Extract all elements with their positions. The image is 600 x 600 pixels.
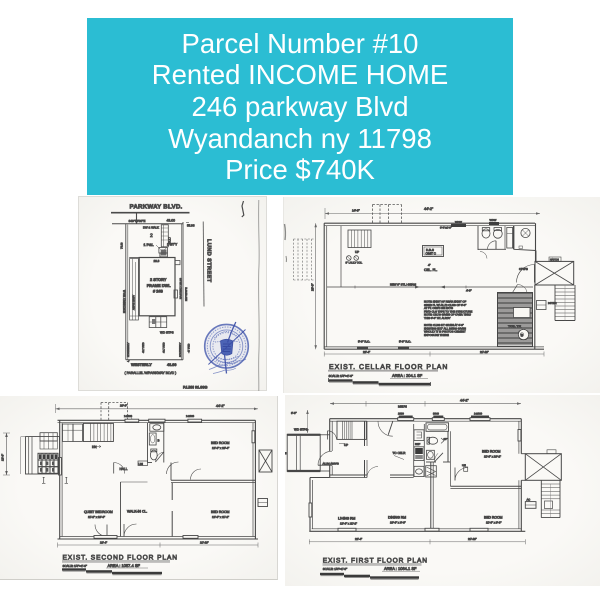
svg-text:6'-0": 6'-0": [291, 411, 297, 415]
svg-text:WD STPS: WD STPS: [160, 331, 174, 335]
svg-text:2-2030: 2-2030: [474, 413, 483, 416]
svg-text:DW & WALK: DW & WALK: [143, 226, 159, 230]
svg-text:22'-4": 22'-4": [355, 537, 362, 541]
svg-text:( PARALLEL W/PARKWAY BLVD ): ( PARALLEL W/PARKWAY BLVD ): [125, 371, 177, 375]
svg-text:SCALE: 1/4"=1'-0": SCALE: 1/4"=1'-0": [329, 374, 353, 378]
svg-text:HATCH: HATCH: [550, 259, 559, 262]
svg-text:EXIST. FIRST FLOOR PLAN: EXIST. FIRST FLOOR PLAN: [323, 558, 428, 565]
svg-text:3'-0"x1'-6": 3'-0"x1'-6": [440, 227, 452, 230]
svg-text:75.36: 75.36: [121, 242, 124, 249]
svg-text:EXPOSURE THERE: EXPOSURE THERE: [424, 334, 449, 337]
svg-text:43.00: 43.00: [167, 363, 177, 367]
svg-text:AREA : 1057.4 SF: AREA : 1057.4 SF: [108, 563, 141, 568]
svg-text:SOUTHERLY: SOUTHERLY: [179, 342, 182, 357]
svg-text:S43°58'00"E: S43°58'00"E: [129, 219, 146, 223]
svg-text:43.7 FE'D: 43.7 FE'D: [163, 342, 166, 353]
svg-text:WDW: WDW: [490, 219, 497, 222]
svg-text:REF: REF: [415, 443, 421, 446]
svg-text:TOIL TR: TOIL TR: [508, 325, 522, 329]
svg-text:LUND STREET: LUND STREET: [206, 239, 212, 283]
svg-text:5'-8" R.O.: 5'-8" R.O.: [399, 340, 411, 344]
svg-text:AC: AC: [527, 499, 531, 502]
svg-text:3" LALLY COL: 3" LALLY COL: [346, 262, 363, 265]
svg-text:21'-10": 21'-10": [468, 537, 477, 541]
svg-text:2-2030: 2-2030: [186, 415, 195, 418]
svg-text:EASTERLY 118.88: EASTERLY 118.88: [179, 277, 182, 299]
svg-text:26.3: 26.3: [154, 259, 160, 263]
svg-text:HALL: HALL: [120, 467, 128, 471]
svg-text:THIS 6'-8" HT. ALRDY: THIS 6'-8" HT. ALRDY: [424, 317, 451, 320]
svg-text:20'-8": 20'-8": [120, 404, 127, 408]
svg-text:44'-2": 44'-2": [424, 207, 434, 211]
svg-text:4'-0": 4'-0": [466, 289, 472, 293]
svg-text:22'-4": 22'-4": [100, 541, 107, 545]
svg-text:14'-6": 14'-6": [352, 209, 360, 213]
svg-text:B: B: [158, 439, 160, 443]
svg-text:QUIET BEDROOM: QUIET BEDROOM: [84, 510, 113, 514]
svg-text:1 ST'Y: 1 ST'Y: [167, 243, 178, 247]
svg-text:OPN'G: OPN'G: [519, 267, 528, 271]
svg-text:12'-0" x 10'-4": 12'-0" x 10'-4": [212, 446, 229, 450]
svg-text:OMIT C: OMIT C: [426, 252, 437, 256]
svg-text:LIVING RM: LIVING RM: [338, 517, 356, 521]
svg-text:EXIST. CELLAR FLOOR PLAN: EXIST. CELLAR FLOOR PLAN: [329, 364, 448, 371]
svg-text:3040: 3040: [433, 413, 439, 416]
svg-text:WESTERLY: WESTERLY: [131, 363, 152, 367]
svg-text:12'-6" x 11'-2": 12'-6" x 11'-2": [340, 522, 357, 526]
svg-text:SCALE: 1/4"=1'-0": SCALE: 1/4"=1'-0": [63, 564, 87, 568]
svg-text:2: 2: [150, 233, 153, 239]
svg-text:WDW: WDW: [455, 221, 462, 224]
svg-text:WALK-IN CL.: WALK-IN CL.: [127, 510, 147, 514]
svg-text:2-2030: 2-2030: [124, 415, 133, 418]
svg-text:5'-8" R.O.: 5'-8" R.O.: [358, 340, 370, 344]
svg-text:44'-2": 44'-2": [216, 404, 225, 408]
svg-text:ALUM AWN'G: ALUM AWN'G: [323, 462, 339, 465]
svg-text:2030: 2030: [398, 413, 404, 416]
svg-text:55.96: 55.96: [187, 224, 195, 228]
svg-text:P.LBN 91.08G: P.LBN 91.08G: [183, 386, 207, 390]
svg-text:AREA : 204.1 SF: AREA : 204.1 SF: [392, 373, 423, 378]
svg-text:NORTHERLY: NORTHERLY: [127, 342, 130, 357]
svg-text:11'-2" x 10'-6": 11'-2" x 10'-6": [88, 515, 105, 519]
svg-text:21'-10": 21'-10": [200, 541, 209, 545]
svg-text:11'-6" x 10'-2": 11'-6" x 10'-2": [484, 455, 501, 459]
svg-text:28'-0": 28'-0": [311, 283, 315, 291]
svg-text:11'-6" x 9'-8": 11'-6" x 9'-8": [486, 521, 501, 525]
svg-text:MED'N: MED'N: [398, 405, 407, 409]
svg-text:NORTHERLY 118.11: NORTHERLY 118.11: [123, 289, 126, 313]
svg-text:CEL. FL.: CEL. FL.: [424, 268, 437, 272]
svg-text:N46°02'00"E: N46°02'00"E: [185, 287, 188, 301]
svg-text:43.00: 43.00: [167, 219, 176, 223]
svg-text:SCALE: 1/4"=1'-0": SCALE: 1/4"=1'-0": [323, 567, 347, 571]
svg-text:WD STPS: WD STPS: [294, 428, 308, 432]
svg-text:30": 30": [444, 438, 448, 441]
svg-text:22'-4": 22'-4": [363, 350, 370, 354]
svg-text:BED ROOM: BED ROOM: [482, 450, 501, 454]
svg-text:PARKWAY BLVD.: PARKWAY BLVD.: [130, 204, 183, 211]
svg-text:EXIST. SECOND FLOOR PLAN: EXIST. SECOND FLOOR PLAN: [63, 555, 178, 562]
svg-text:BED ROOM: BED ROOM: [484, 516, 503, 520]
svg-text:ASPH DRWY: ASPH DRWY: [133, 295, 136, 310]
svg-text:21'-10": 21'-10": [480, 350, 489, 354]
svg-text:2 STORY: 2 STORY: [150, 277, 167, 282]
svg-text:BED ROOM: BED ROOM: [211, 441, 230, 445]
svg-text:DINING RM: DINING RM: [388, 516, 406, 520]
svg-text:43.7 FE'D: 43.7 FE'D: [142, 342, 145, 353]
svg-text:NEW 8" STL I-BEAM: NEW 8" STL I-BEAM: [390, 283, 417, 287]
svg-text:10'-0" x 9'-6": 10'-0" x 9'-6": [390, 521, 406, 525]
svg-text:12'-8": 12'-8": [1, 454, 5, 461]
svg-text:FRAME DWL: FRAME DWL: [147, 283, 171, 288]
svg-text:44'-2": 44'-2": [460, 399, 469, 403]
svg-text:1 P&L: 1 P&L: [144, 243, 155, 247]
svg-text:LIN: LIN: [462, 464, 466, 467]
svg-text:UP: UP: [355, 250, 359, 254]
svg-text:4": 4": [428, 263, 431, 267]
svg-text:12'-0" x 11'-2": 12'-0" x 11'-2": [212, 515, 229, 519]
svg-text:TO CELR: TO CELR: [393, 451, 407, 455]
svg-text:-47 FE'D: -47 FE'D: [188, 343, 191, 353]
svg-text:LIN: LIN: [139, 462, 143, 466]
svg-text:DN: DN: [92, 445, 97, 449]
svg-text:BED ROOM: BED ROOM: [211, 510, 230, 514]
svg-text:# 246: # 246: [153, 289, 164, 294]
svg-text:AREA : 1064.1 SF: AREA : 1064.1 SF: [384, 566, 417, 571]
svg-text:BSTER: BSTER: [548, 302, 557, 305]
